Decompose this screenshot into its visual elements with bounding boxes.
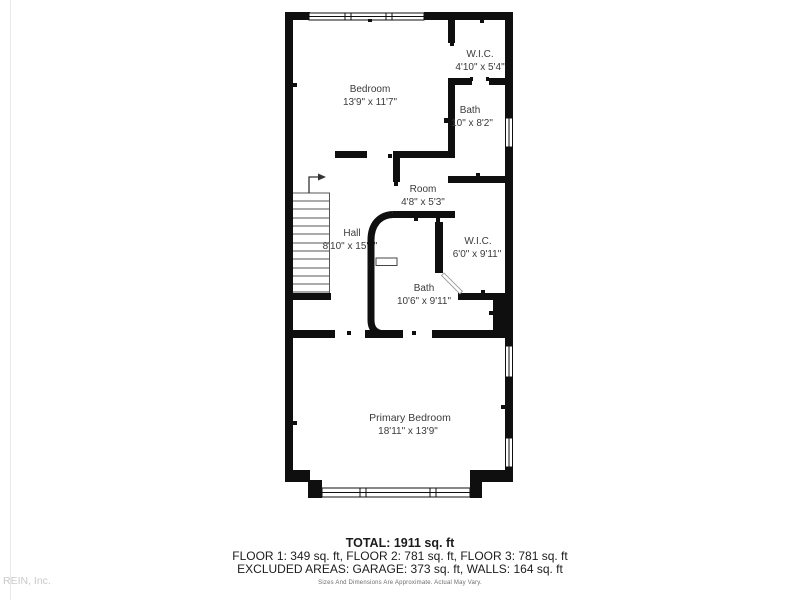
disclaimer-text: Sizes And Dimensions Are Approximate. Ac… bbox=[0, 580, 800, 586]
floor-plan-drawing: 8'10" x 15'1" bbox=[0, 0, 800, 530]
wic-upper-name-label: W.I.C. bbox=[466, 49, 493, 60]
total-area-text: TOTAL: 1911 sq. ft bbox=[0, 536, 800, 550]
floor-areas-text: FLOOR 1: 349 sq. ft, FLOOR 2: 781 sq. ft… bbox=[0, 550, 800, 563]
rein-watermark: REIN, Inc. bbox=[3, 575, 51, 587]
primary-bedroom-dims-label: 18'11" x 13'9" bbox=[378, 426, 438, 437]
room-dims-label: 4'8" x 5'3" bbox=[401, 197, 445, 208]
room-name-label: Room bbox=[410, 184, 437, 195]
bath-mid-dims-label: 10'6" x 9'11" bbox=[397, 296, 452, 307]
bath-mid-name-label: Bath bbox=[414, 283, 435, 294]
bath-door-leaf bbox=[442, 273, 463, 294]
curved-hall-wall bbox=[371, 215, 393, 335]
bedroom-name-label: Bedroom bbox=[350, 84, 391, 95]
wic-upper-dims-label: 4'10" x 5'4" bbox=[455, 62, 505, 73]
stairs bbox=[293, 193, 330, 293]
area-summary: TOTAL: 1911 sq. ft FLOOR 1: 349 sq. ft, … bbox=[0, 536, 800, 586]
stairs-direction-arrow bbox=[309, 174, 326, 194]
wic-mid-dims-label: 6'0" x 9'11" bbox=[453, 249, 502, 260]
bath-upper-dims-label: 10" x 8'2" bbox=[451, 118, 493, 129]
door-markers bbox=[293, 19, 505, 425]
hall-name-label: Hall bbox=[343, 228, 360, 239]
hall-shelf bbox=[376, 258, 397, 266]
excluded-areas-text: EXCLUDED AREAS: GARAGE: 373 sq. ft, WALL… bbox=[0, 563, 800, 576]
primary-bedroom-name-label: Primary Bedroom bbox=[369, 412, 451, 424]
floor-plan-page: 8'10" x 15'1" bbox=[0, 0, 800, 600]
bath-upper-name-label: Bath bbox=[460, 105, 481, 116]
bedroom-dims-label: 13'9" x 11'7" bbox=[343, 97, 398, 108]
wic-mid-name-label: W.I.C. bbox=[464, 236, 491, 247]
